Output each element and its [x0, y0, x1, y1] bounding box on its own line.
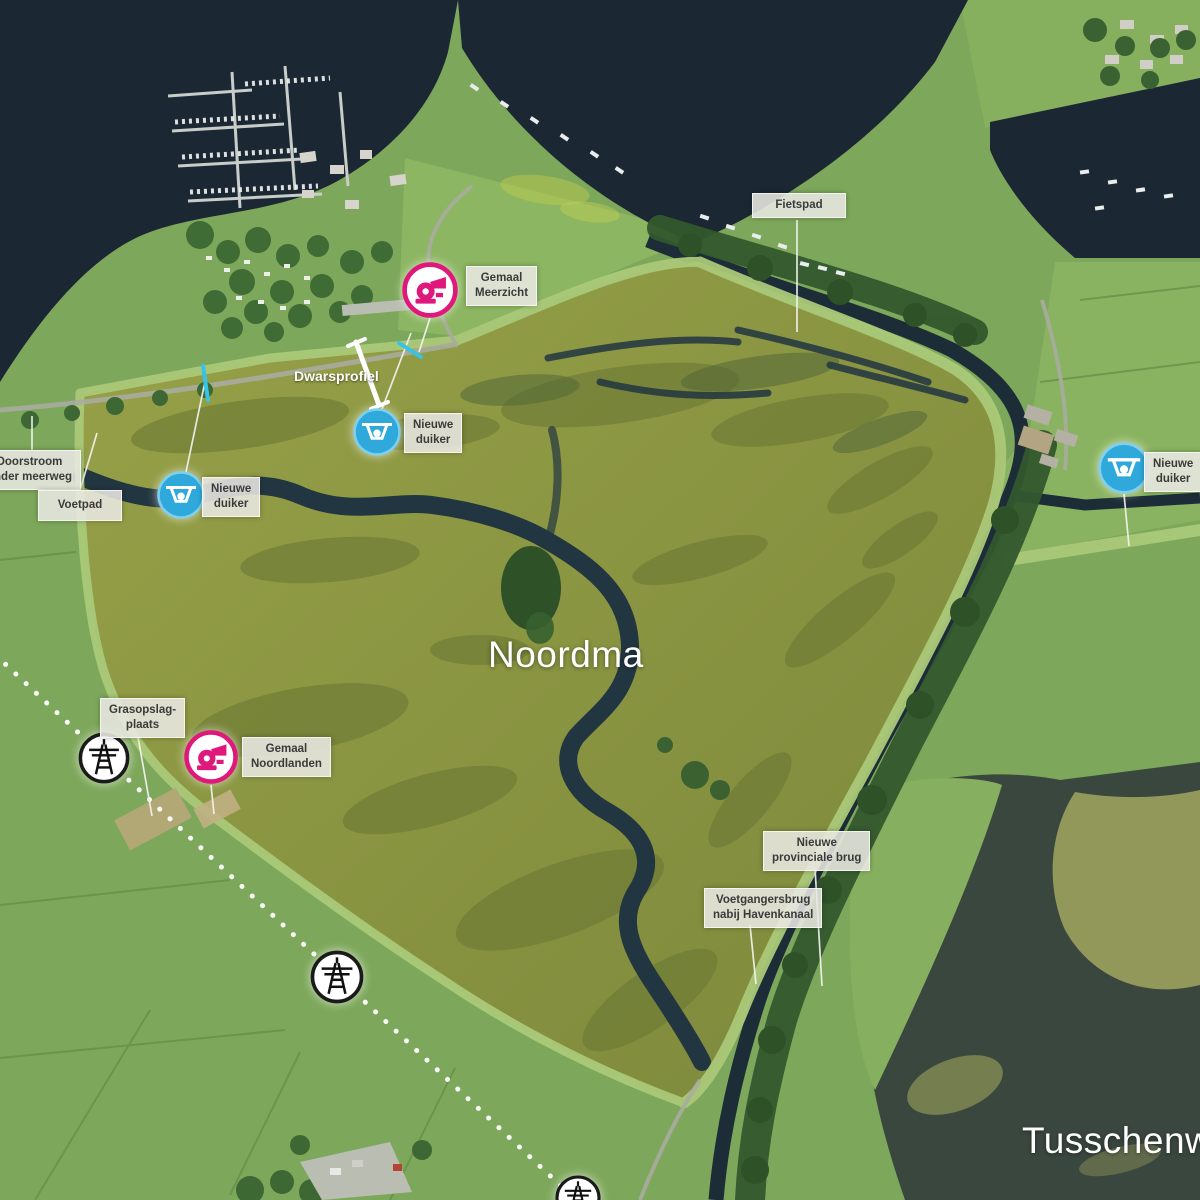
- duiker-culvert-icon: [352, 407, 402, 457]
- label-text: Fietspad: [761, 198, 837, 213]
- label-fietspad: Fietspad: [752, 193, 846, 218]
- label-text: Nieuwe: [413, 418, 453, 433]
- power-pylon-icon: [309, 949, 365, 1005]
- power-line-dotted: [0, 645, 578, 1200]
- label-text: Grasopslag-: [109, 703, 176, 718]
- label-text: Dwarsprofiel: [294, 368, 379, 384]
- label-text: Voetpad: [47, 495, 113, 516]
- label-text: Gemaal: [251, 742, 322, 757]
- label-text: provinciale brug: [772, 851, 861, 866]
- area-name-text: Noordma: [488, 634, 644, 675]
- area-label-noordma: Noordma: [488, 634, 644, 676]
- area-name-text: Tusschenwater: [1022, 1120, 1200, 1161]
- label-text: Nieuwe: [772, 836, 861, 851]
- label-text: Noordlanden: [251, 757, 322, 772]
- label-text: Meerzicht: [475, 286, 528, 301]
- label-grasopslag-plaats: Grasopslag- plaats: [100, 698, 185, 738]
- label-text: onder meerweg: [0, 470, 72, 485]
- power-pylon-icon: [554, 1174, 602, 1200]
- label-text: duiker: [211, 497, 251, 512]
- label-doorstroom-onder-meerweg: Doorstroom onder meerweg: [0, 450, 81, 490]
- label-nieuwe-duiker-west: Nieuwe duiker: [202, 477, 260, 517]
- area-label-tusschenwater: Tusschenwater: [1022, 1120, 1200, 1162]
- label-text: Nieuwe: [211, 482, 251, 497]
- label-text: duiker: [413, 433, 453, 448]
- label-text: Doorstroom: [0, 455, 72, 470]
- label-nieuwe-provinciale-brug: Nieuwe provinciale brug: [763, 831, 870, 871]
- aerial-project-map: Fietspad Gemaal Meerzicht Dwarsprofiel N…: [0, 0, 1200, 1200]
- label-gemaal-noordlanden: Gemaal Noordlanden: [242, 737, 331, 777]
- leader-lines: [32, 220, 1129, 986]
- label-voetgangersbrug-havenkanaal: Voetgangersbrug nabij Havenkanaal: [704, 888, 822, 928]
- power-pylon-icon: [77, 731, 131, 785]
- label-nieuwe-duiker-noord: Nieuwe duiker: [404, 413, 462, 453]
- label-text: plaats: [109, 718, 176, 733]
- label-text: nabij Havenkanaal: [713, 908, 813, 923]
- duiker-culvert-icon: [1097, 441, 1151, 495]
- duiker-culvert-icon: [156, 470, 206, 520]
- label-text: duiker: [1153, 472, 1193, 487]
- label-dwarsprofiel: Dwarsprofiel: [294, 368, 379, 384]
- label-text: Voetgangersbrug: [713, 893, 813, 908]
- label-gemaal-meerzicht: Gemaal Meerzicht: [466, 266, 537, 306]
- label-nieuwe-duiker-oost: Nieuwe duiker: [1144, 452, 1200, 492]
- label-text: Nieuwe: [1153, 457, 1193, 472]
- label-text: Gemaal: [475, 271, 528, 286]
- gemaal-pump-icon: [183, 729, 239, 785]
- label-voetpad: Voetpad: [38, 490, 122, 521]
- annotation-lines: [0, 0, 1200, 1200]
- gemaal-pump-icon: [401, 261, 459, 319]
